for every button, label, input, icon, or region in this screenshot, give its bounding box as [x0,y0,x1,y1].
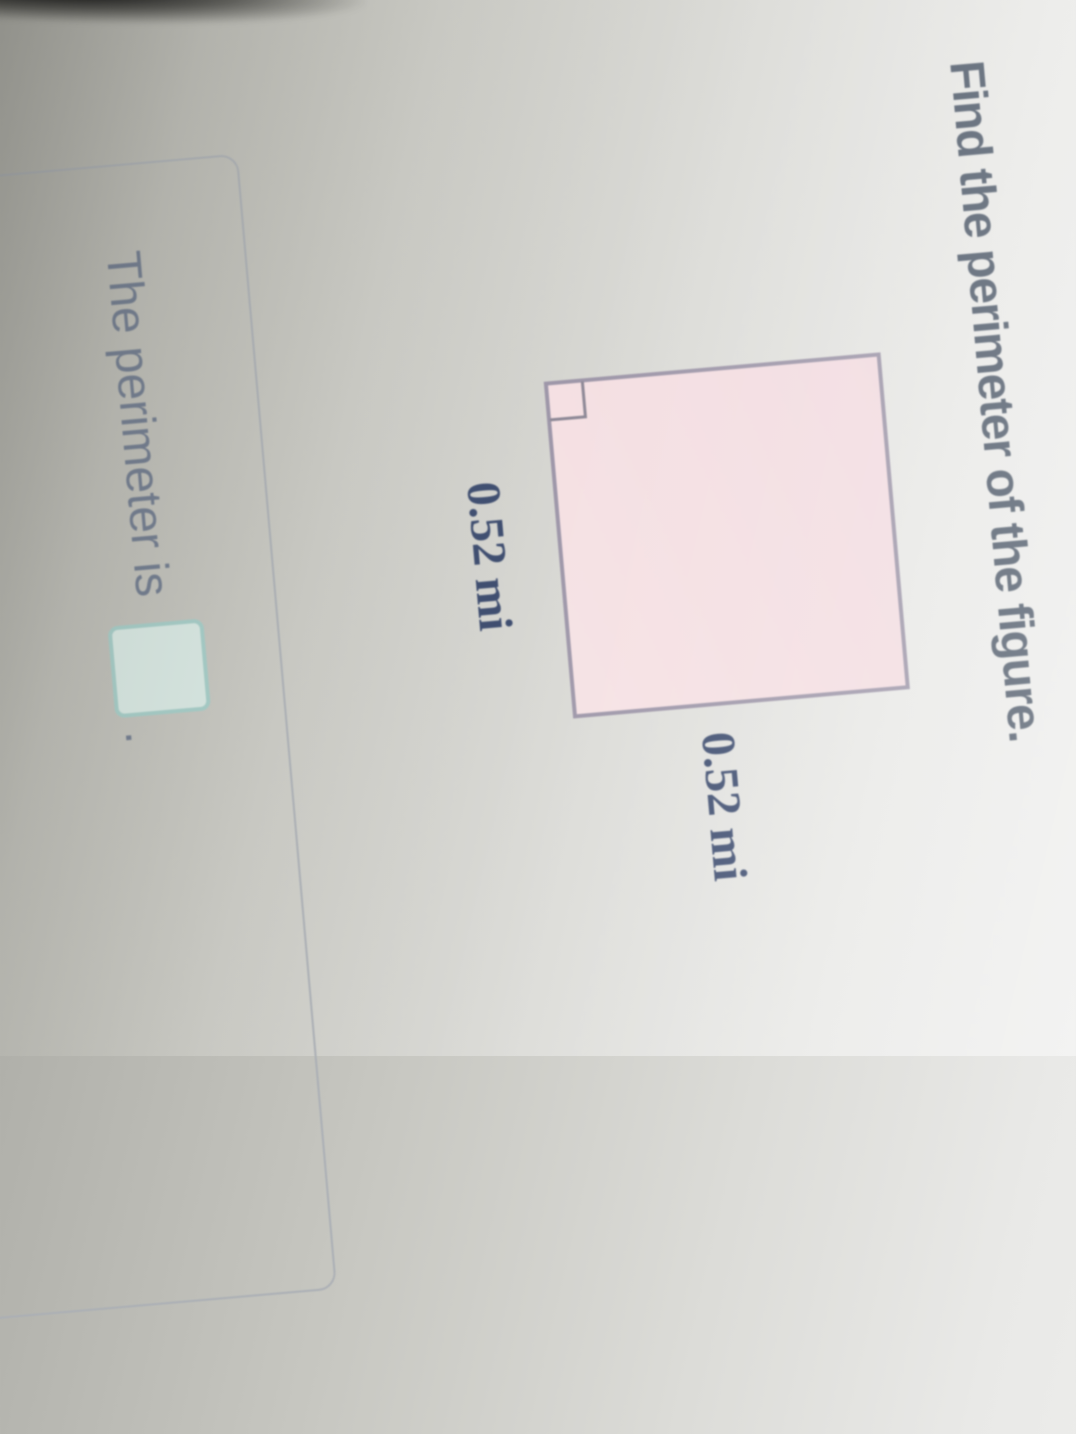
answer-line: The perimeter is . [75,247,214,746]
side-label-right: 0.52 mi [690,730,758,884]
side-label-bottom: 0.52 mi [447,385,531,727]
right-angle-marker-icon [547,381,587,421]
answer-input[interactable] [107,618,211,718]
answer-suffix-period: . [117,728,166,745]
answer-prefix-text: The perimeter is [95,249,180,599]
answer-panel: The perimeter is . [0,154,337,1335]
square-figure [544,352,910,718]
question-heading: Find the perimeter of the figure. [938,58,1076,1059]
screen-content: Find the perimeter of the figure. 0.52 m… [0,0,1076,1434]
